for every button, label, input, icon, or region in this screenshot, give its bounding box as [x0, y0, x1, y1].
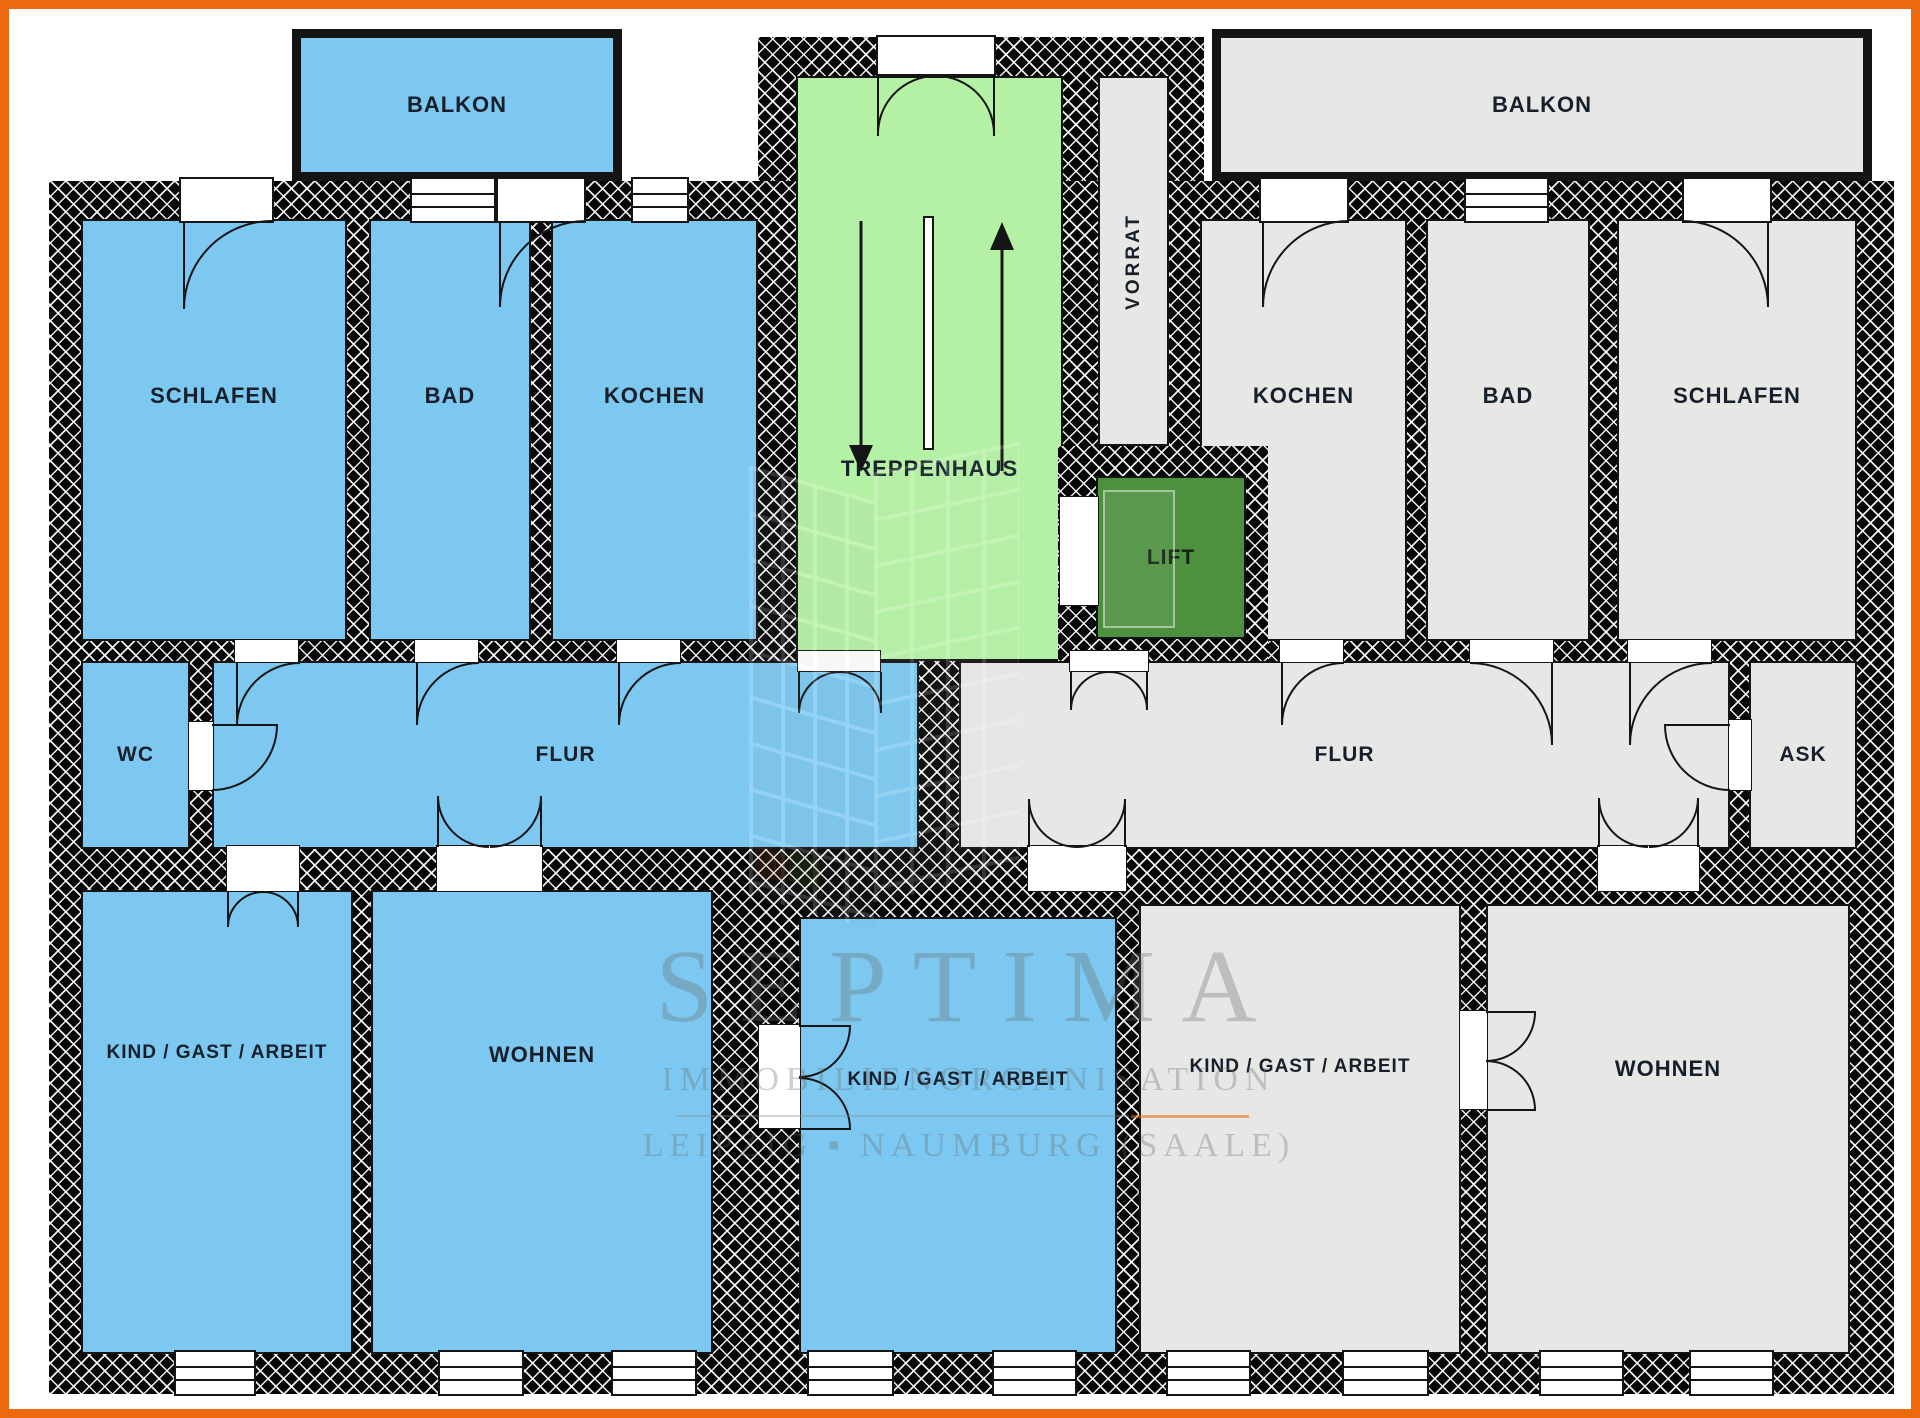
window	[631, 177, 689, 223]
room-label: SCHLAFEN	[150, 383, 278, 409]
room-kind-right: KIND / GAST / ARBEIT	[1139, 904, 1461, 1354]
door	[414, 639, 479, 663]
room-wohnen-right: WOHNEN	[1486, 904, 1850, 1354]
room-label: BAD	[1483, 383, 1534, 409]
room-label: TREPPENHAUS	[841, 456, 1018, 482]
room-bad-left: BAD	[369, 219, 531, 641]
door	[1627, 639, 1712, 663]
room-label: BAD	[425, 383, 476, 409]
room-kochen-left: KOCHEN	[551, 219, 758, 641]
door-wc	[188, 721, 214, 791]
room-bad-right: BAD	[1426, 219, 1590, 641]
window	[1539, 1350, 1624, 1396]
room-label: ASK	[1779, 743, 1826, 767]
room-label: WOHNEN	[489, 1042, 595, 1068]
room-ask: ASK	[1749, 661, 1857, 849]
window	[1682, 177, 1772, 223]
window	[174, 1350, 256, 1396]
room-vorrat: VORRAT	[1098, 76, 1169, 446]
room-wohnen-left: WOHNEN	[371, 890, 713, 1354]
room-label: KIND / GAST / ARBEIT	[1190, 1056, 1411, 1078]
door	[234, 639, 299, 663]
room-treppenhaus: TREPPENHAUS	[796, 76, 1063, 661]
door	[758, 1024, 801, 1129]
room-label: KIND / GAST / ARBEIT	[848, 1069, 1069, 1091]
room-label: BALKON	[407, 92, 507, 118]
window	[1464, 177, 1549, 223]
flat-entry-door-right	[1069, 650, 1149, 672]
room-lift: LIFT	[1096, 476, 1246, 639]
window	[992, 1350, 1077, 1396]
window	[438, 1350, 524, 1396]
window	[410, 177, 496, 223]
room-label: FLUR	[1315, 743, 1375, 767]
window	[179, 177, 274, 223]
room-label: FLUR	[536, 743, 596, 767]
door	[1597, 845, 1700, 892]
floor-plan: BALKON BALKON SCHLAFEN BAD KOCHEN WC FLU…	[0, 0, 1920, 1418]
room-label: WC	[117, 743, 154, 767]
room-label: KOCHEN	[604, 383, 705, 409]
room-schlafen-right: SCHLAFEN	[1617, 219, 1857, 641]
balcony-door	[496, 177, 586, 223]
door	[436, 845, 543, 892]
room-label: SCHLAFEN	[1673, 383, 1801, 409]
entrance-door	[876, 35, 996, 76]
balcony-right: BALKON	[1212, 29, 1872, 181]
room-kind-middle: KIND / GAST / ARBEIT	[799, 917, 1117, 1354]
room-flur-left: FLUR	[212, 661, 919, 849]
room-label: BALKON	[1492, 92, 1592, 118]
room-label: VORRAT	[1123, 213, 1145, 310]
door	[1459, 1010, 1488, 1110]
room-label: KOCHEN	[1253, 383, 1354, 409]
room-flur-right: FLUR	[959, 661, 1730, 849]
window	[1166, 1350, 1251, 1396]
window	[1342, 1350, 1429, 1396]
door	[616, 639, 681, 663]
door	[1469, 639, 1554, 663]
window	[611, 1350, 697, 1396]
room-wc: WC	[81, 661, 190, 849]
lift-door	[1059, 496, 1099, 606]
room-label: WOHNEN	[1615, 1056, 1721, 1082]
door	[1027, 845, 1127, 892]
room-schlafen-left: SCHLAFEN	[81, 219, 347, 641]
lift-car	[1103, 490, 1175, 628]
door-ask	[1728, 719, 1752, 791]
window	[1689, 1350, 1774, 1396]
window	[807, 1350, 894, 1396]
room-label: KIND / GAST / ARBEIT	[107, 1042, 328, 1064]
flat-entry-door-left	[797, 650, 881, 672]
door	[1279, 639, 1344, 663]
room-kind-left: KIND / GAST / ARBEIT	[81, 890, 353, 1354]
balcony-door	[1259, 177, 1349, 223]
door	[226, 845, 300, 892]
balcony-left: BALKON	[292, 29, 622, 181]
